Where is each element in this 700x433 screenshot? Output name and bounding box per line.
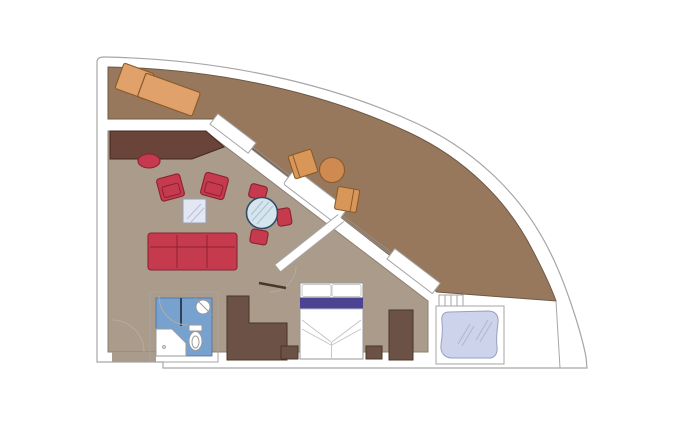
desk-stool xyxy=(138,154,160,168)
entry-opening xyxy=(112,352,156,362)
bathroom xyxy=(150,292,218,362)
nightstand-left xyxy=(281,346,298,359)
coffee-table xyxy=(183,199,206,223)
floor-plan-canvas xyxy=(0,0,700,433)
whirlpool-tub xyxy=(441,311,498,358)
pillow-right xyxy=(332,285,361,297)
washbasin xyxy=(196,300,210,314)
nightstand-right xyxy=(366,346,382,359)
bed-runner xyxy=(300,298,363,309)
terrace-round-table xyxy=(320,158,345,183)
dining-chair-3 xyxy=(249,229,268,246)
sofa xyxy=(148,233,237,270)
bedroom-wardrobe xyxy=(389,310,413,360)
toilet-tank xyxy=(189,325,202,331)
sofa-body xyxy=(148,233,237,270)
pillow-left xyxy=(302,285,331,297)
floor-plan-page xyxy=(0,0,700,433)
deck-chair-2-body xyxy=(334,186,360,212)
deck-chair-2 xyxy=(334,186,360,212)
dining-chair-2 xyxy=(276,207,293,226)
